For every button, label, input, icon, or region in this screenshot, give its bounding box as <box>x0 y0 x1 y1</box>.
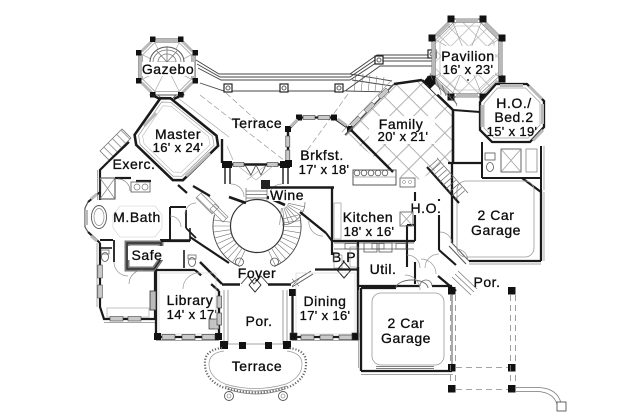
svg-text:Garage: Garage <box>471 222 521 238</box>
svg-text:17' x 18': 17' x 18' <box>299 162 350 177</box>
svg-text:Por.: Por. <box>473 274 500 290</box>
svg-text:20' x 21': 20' x 21' <box>378 129 429 144</box>
svg-text:Util.: Util. <box>370 261 397 277</box>
svg-text:Brkfst.: Brkfst. <box>300 147 344 163</box>
svg-text:Gazebo: Gazebo <box>142 61 194 77</box>
svg-text:Kitchen: Kitchen <box>343 209 394 225</box>
svg-text:Wine: Wine <box>270 187 304 203</box>
svg-text:Por.: Por. <box>245 313 272 329</box>
svg-text:17' x 16': 17' x 16' <box>300 308 351 323</box>
svg-text:Library: Library <box>167 292 214 308</box>
svg-text:H.O.: H.O. <box>411 200 442 216</box>
svg-text:Foyer: Foyer <box>238 265 277 281</box>
svg-text:M.Bath: M.Bath <box>113 209 161 225</box>
svg-text:2 Car: 2 Car <box>388 315 425 331</box>
svg-text:Safe: Safe <box>132 247 163 263</box>
svg-text:Exerc.: Exerc. <box>113 156 156 172</box>
svg-text:Terrace: Terrace <box>232 115 283 131</box>
svg-text:16' x 23': 16' x 23' <box>443 62 494 77</box>
svg-text:Terrace: Terrace <box>232 358 283 374</box>
svg-text:Bed.2: Bed.2 <box>494 109 533 125</box>
svg-text:18' x 16': 18' x 16' <box>344 224 395 239</box>
svg-text:16' x 24': 16' x 24' <box>153 140 204 155</box>
svg-text:15' x 19': 15' x 19' <box>487 124 538 139</box>
svg-text:Dining: Dining <box>304 293 347 309</box>
svg-text:2 Car: 2 Car <box>478 207 515 223</box>
svg-text:Garage: Garage <box>381 330 431 346</box>
